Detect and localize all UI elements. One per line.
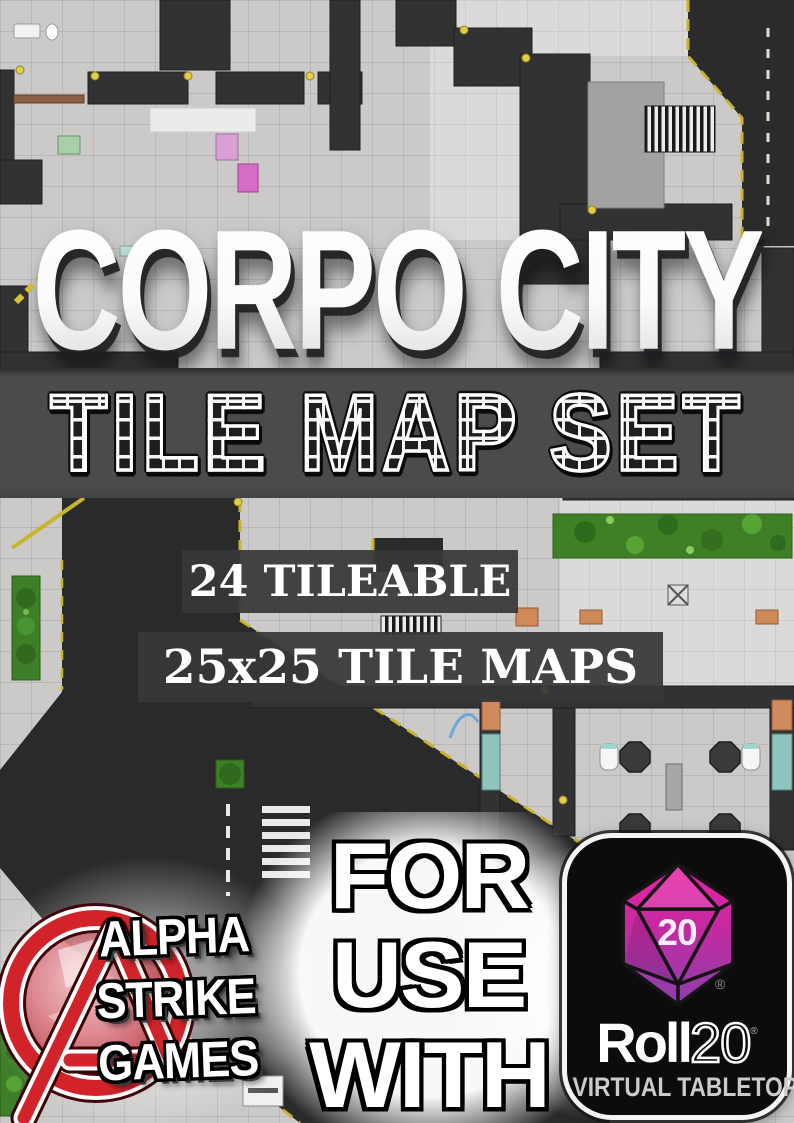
product-cover-poster: CORPO CITY TILE MAP SET 24 TILEABLE 25x2… <box>0 0 794 1123</box>
publisher-logo: ALPHA STRIKE GAMES <box>0 888 305 1123</box>
feature-text-1: 24 TILEABLE <box>189 557 512 607</box>
registered-mark-die: ® <box>715 976 725 992</box>
feature-line-2: 25x25 TILE MAPS <box>138 632 663 702</box>
roll20-brand-number: 20 <box>690 1011 750 1074</box>
roll20-brand-word: Roll <box>596 1011 690 1074</box>
feature-line-1: 24 TILEABLE <box>182 550 518 613</box>
roll20-badge: 20 ® Roll20® VIRTUAL TABLETOP <box>562 833 792 1120</box>
compatibility-word-2: USE <box>332 932 525 1022</box>
d20-face-value: 20 <box>567 912 787 954</box>
product-subtitle: TILE MAP SET <box>50 370 744 495</box>
roll20-wordmark: Roll20® <box>567 1010 787 1075</box>
roll20-tagline: VIRTUAL TABLETOP <box>573 1072 782 1103</box>
compatibility-block: FOR USE WITH <box>288 830 570 1123</box>
feature-text-2: 25x25 TILE MAPS <box>163 640 638 695</box>
subtitle-banner: TILE MAP SET <box>0 368 794 498</box>
registered-mark-wordmark: ® <box>750 1026 757 1037</box>
publisher-name-line-3: GAMES <box>97 1024 259 1099</box>
publisher-name: ALPHA STRIKE GAMES <box>93 903 259 1095</box>
compatibility-word-3: WITH <box>309 1031 549 1121</box>
product-title: CORPO CITY <box>32 192 761 388</box>
compatibility-word-1: FOR <box>330 832 529 922</box>
title-block: CORPO CITY <box>0 192 794 332</box>
